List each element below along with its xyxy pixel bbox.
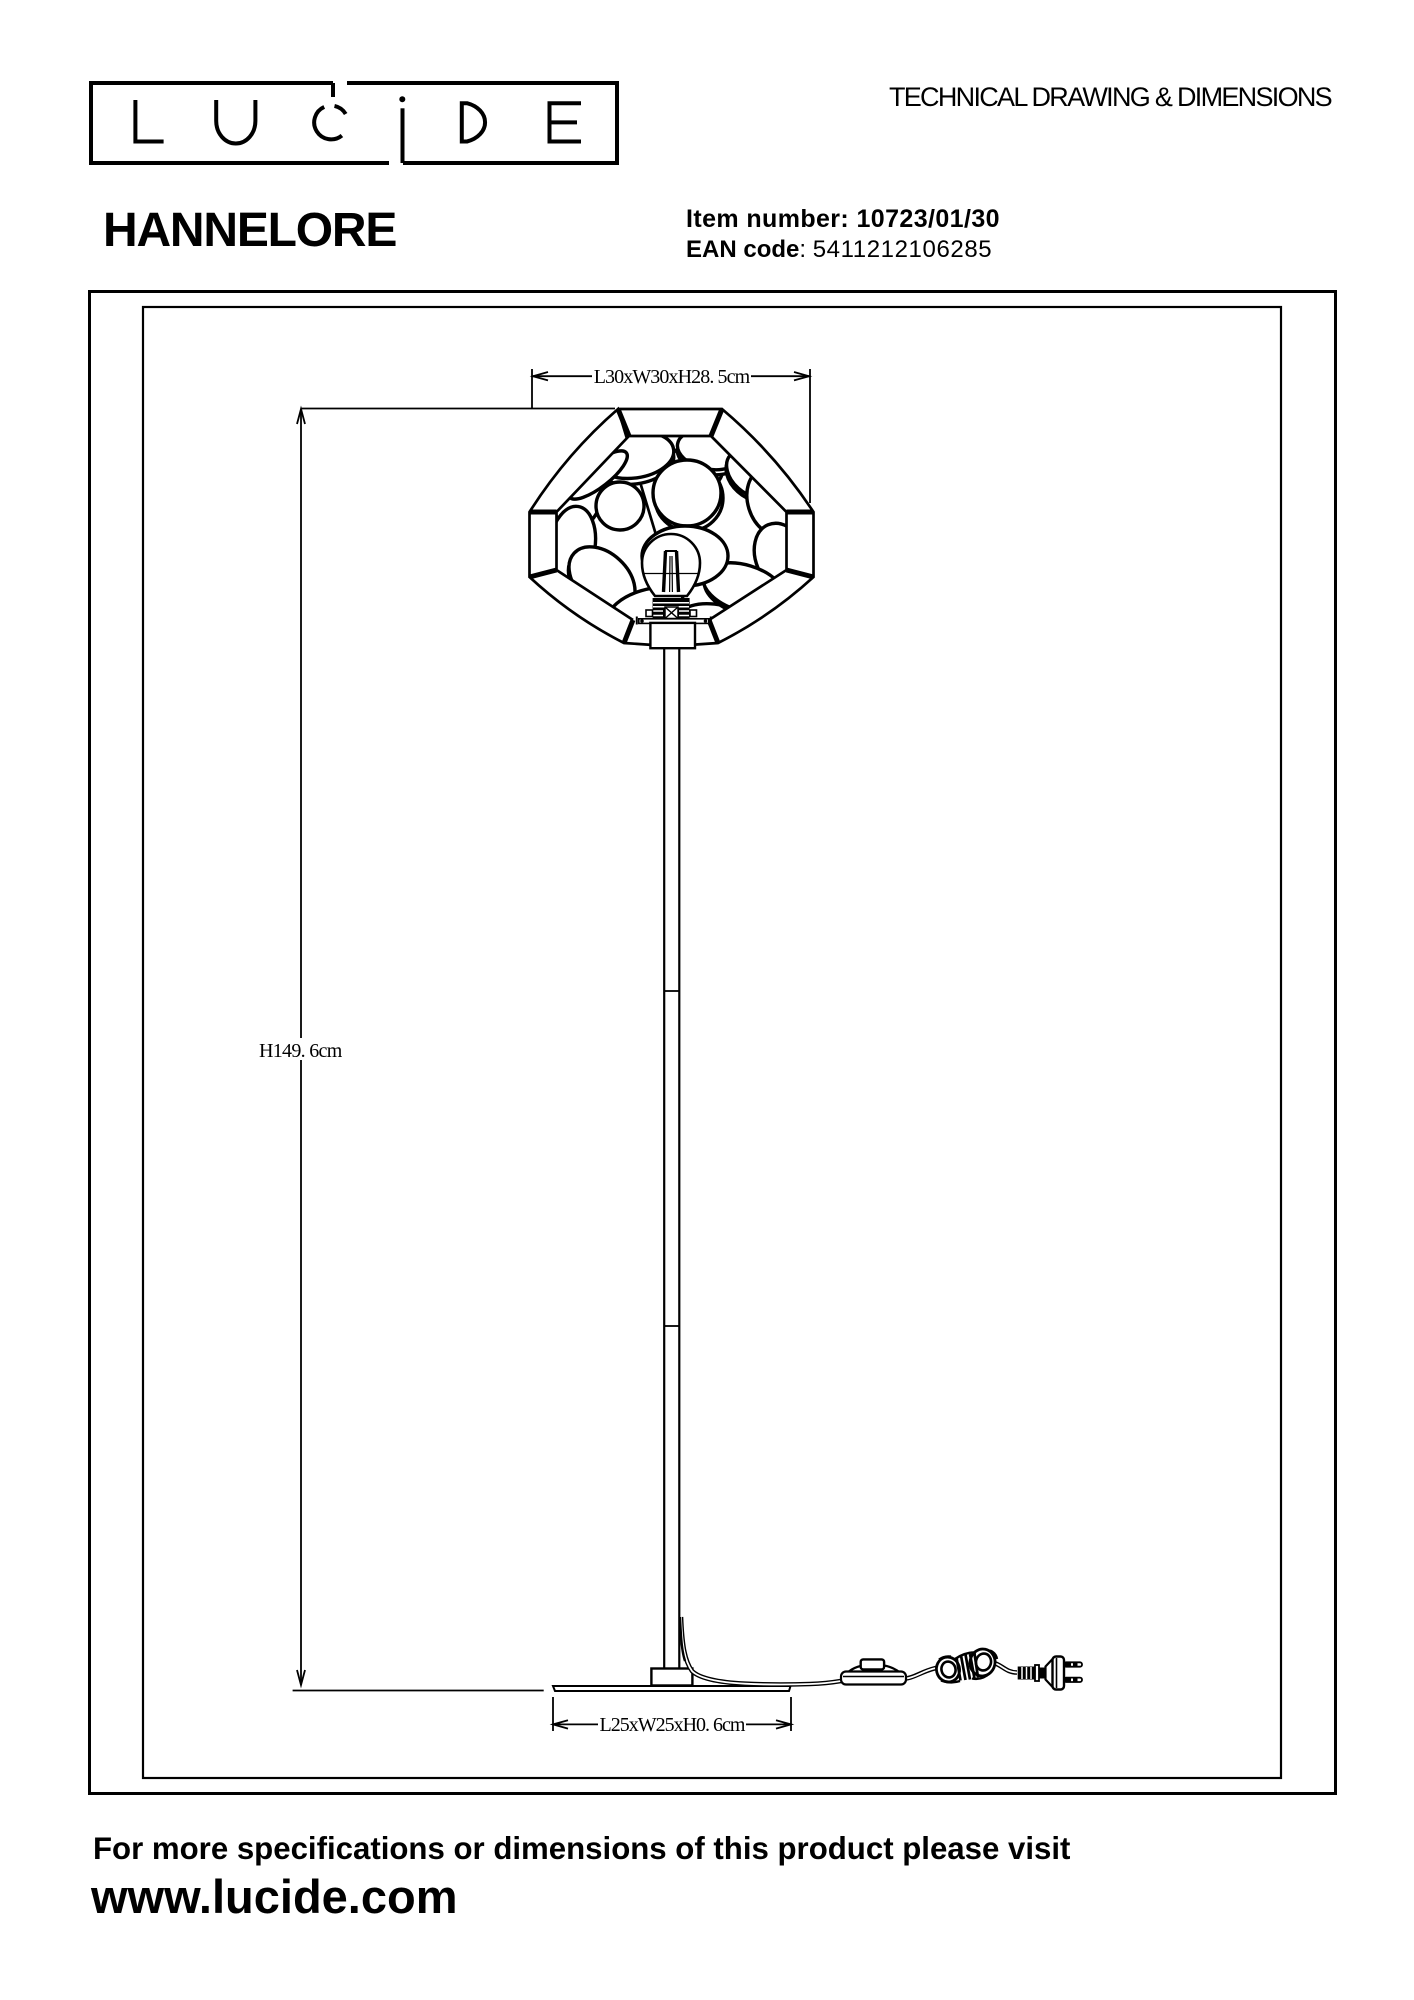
svg-text:For more specifications or dim: For more specifications or dimensions of… [93, 1831, 1070, 1866]
svg-text:L25xW25xH0. 6cm: L25xW25xH0. 6cm [600, 1714, 746, 1736]
svg-text:www.lucide.com: www.lucide.com [90, 1870, 458, 1923]
svg-text:Item number: 10723/01/30: Item number: 10723/01/30 [686, 205, 1000, 233]
svg-text:L30xW30xH28. 5cm: L30xW30xH28. 5cm [594, 366, 751, 388]
svg-text:H149. 6cm: H149. 6cm [259, 1040, 343, 1062]
svg-text:TECHNICAL DRAWING & DIMENSIONS: TECHNICAL DRAWING & DIMENSIONS [889, 82, 1332, 112]
svg-text:EAN code: 5411212106285: EAN code: 5411212106285 [686, 236, 992, 263]
svg-text:HANNELORE: HANNELORE [103, 204, 396, 257]
